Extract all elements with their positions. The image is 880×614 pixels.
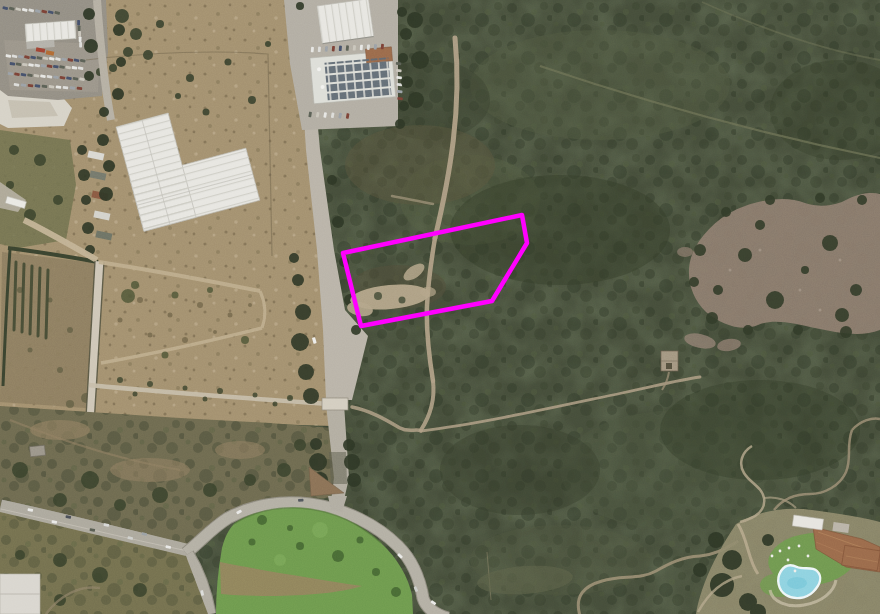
satellite-map-canvas[interactable] (0, 0, 880, 614)
aerial-image (0, 0, 880, 614)
photo-grain (0, 0, 880, 614)
